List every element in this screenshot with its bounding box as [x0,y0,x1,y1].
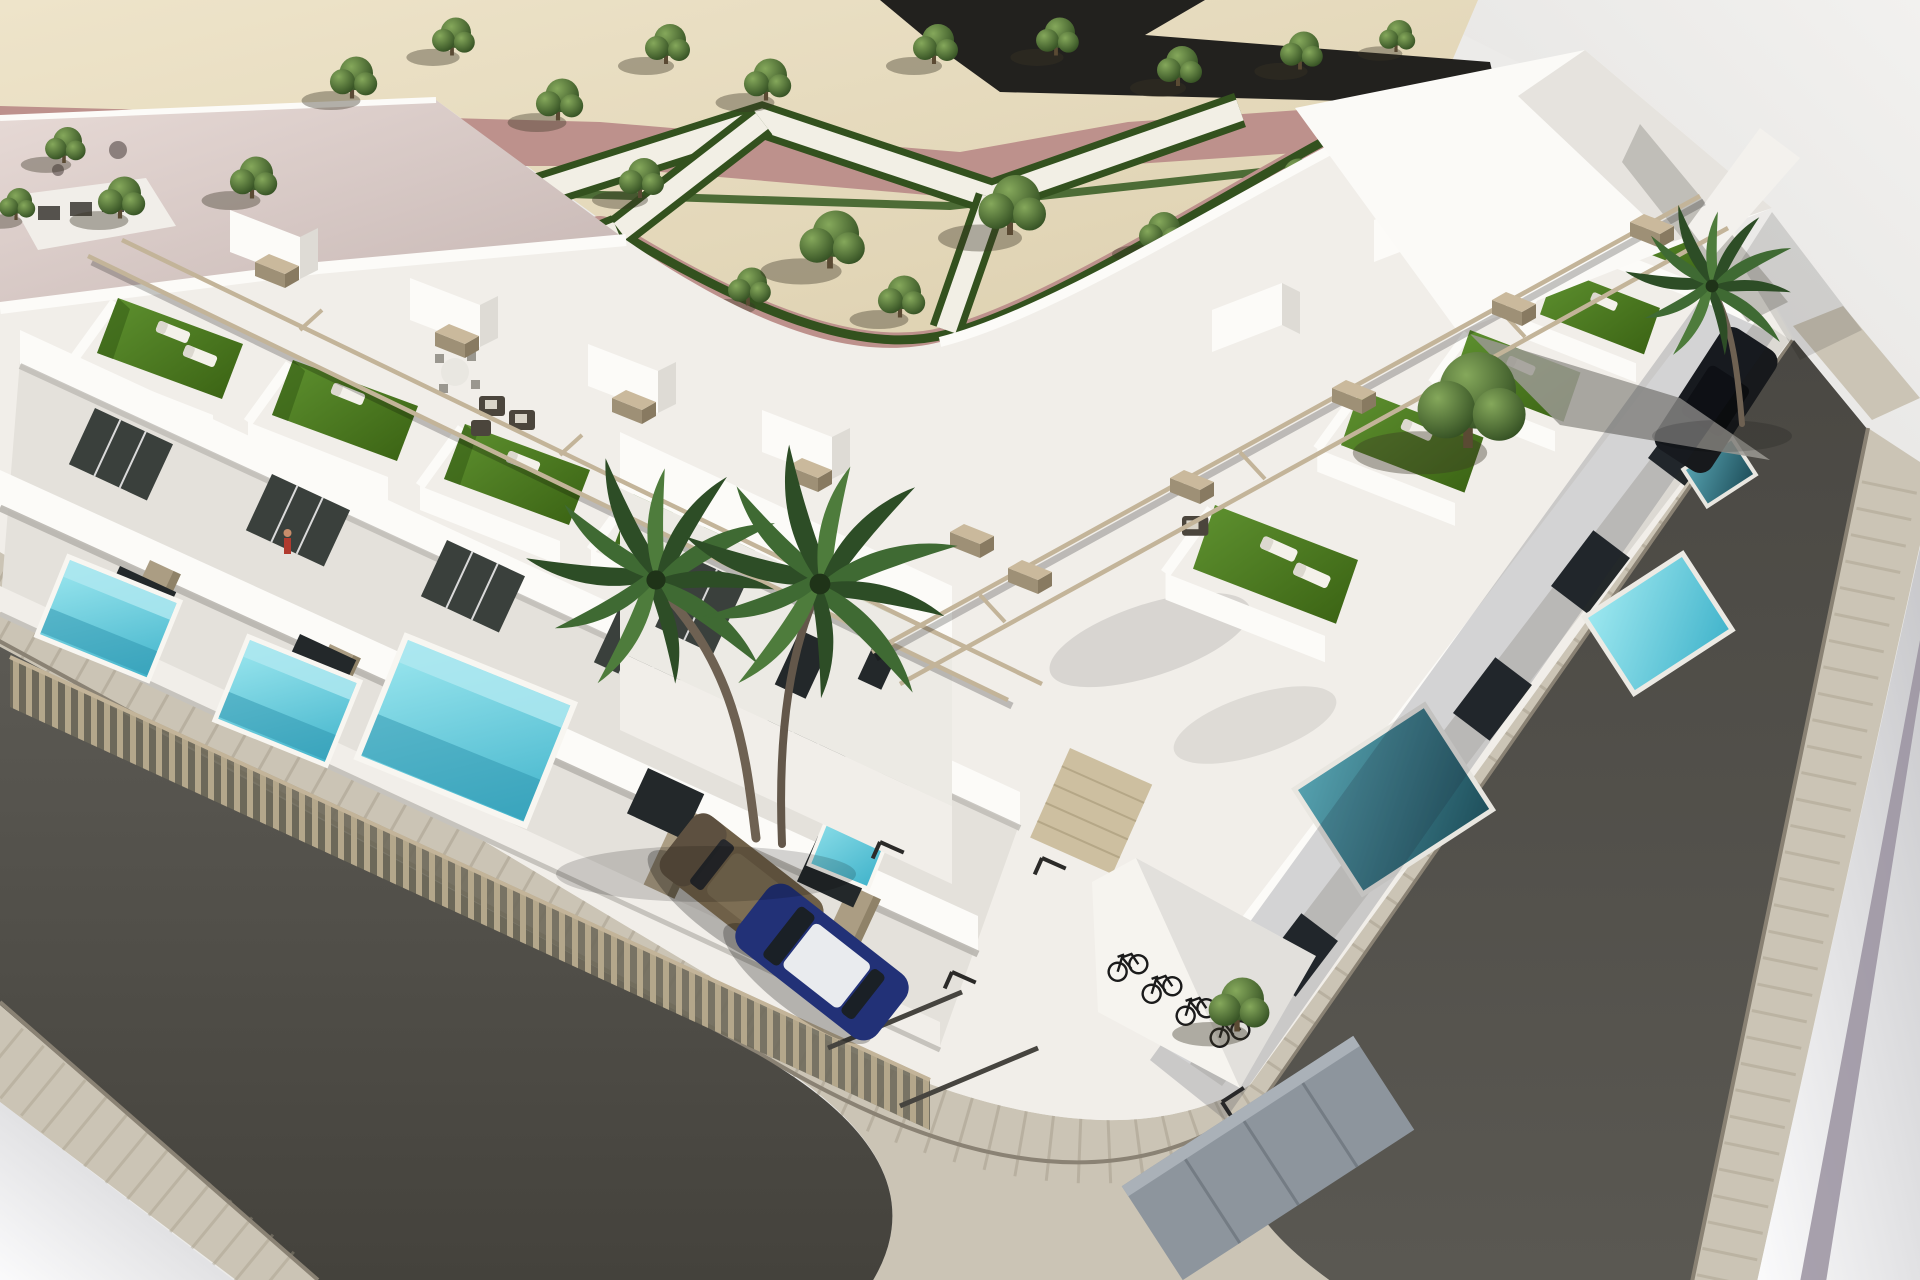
person-on-balcony [284,529,292,554]
architectural-render [0,0,1920,1280]
render-canvas [0,0,1920,1280]
dining-table [441,358,469,386]
